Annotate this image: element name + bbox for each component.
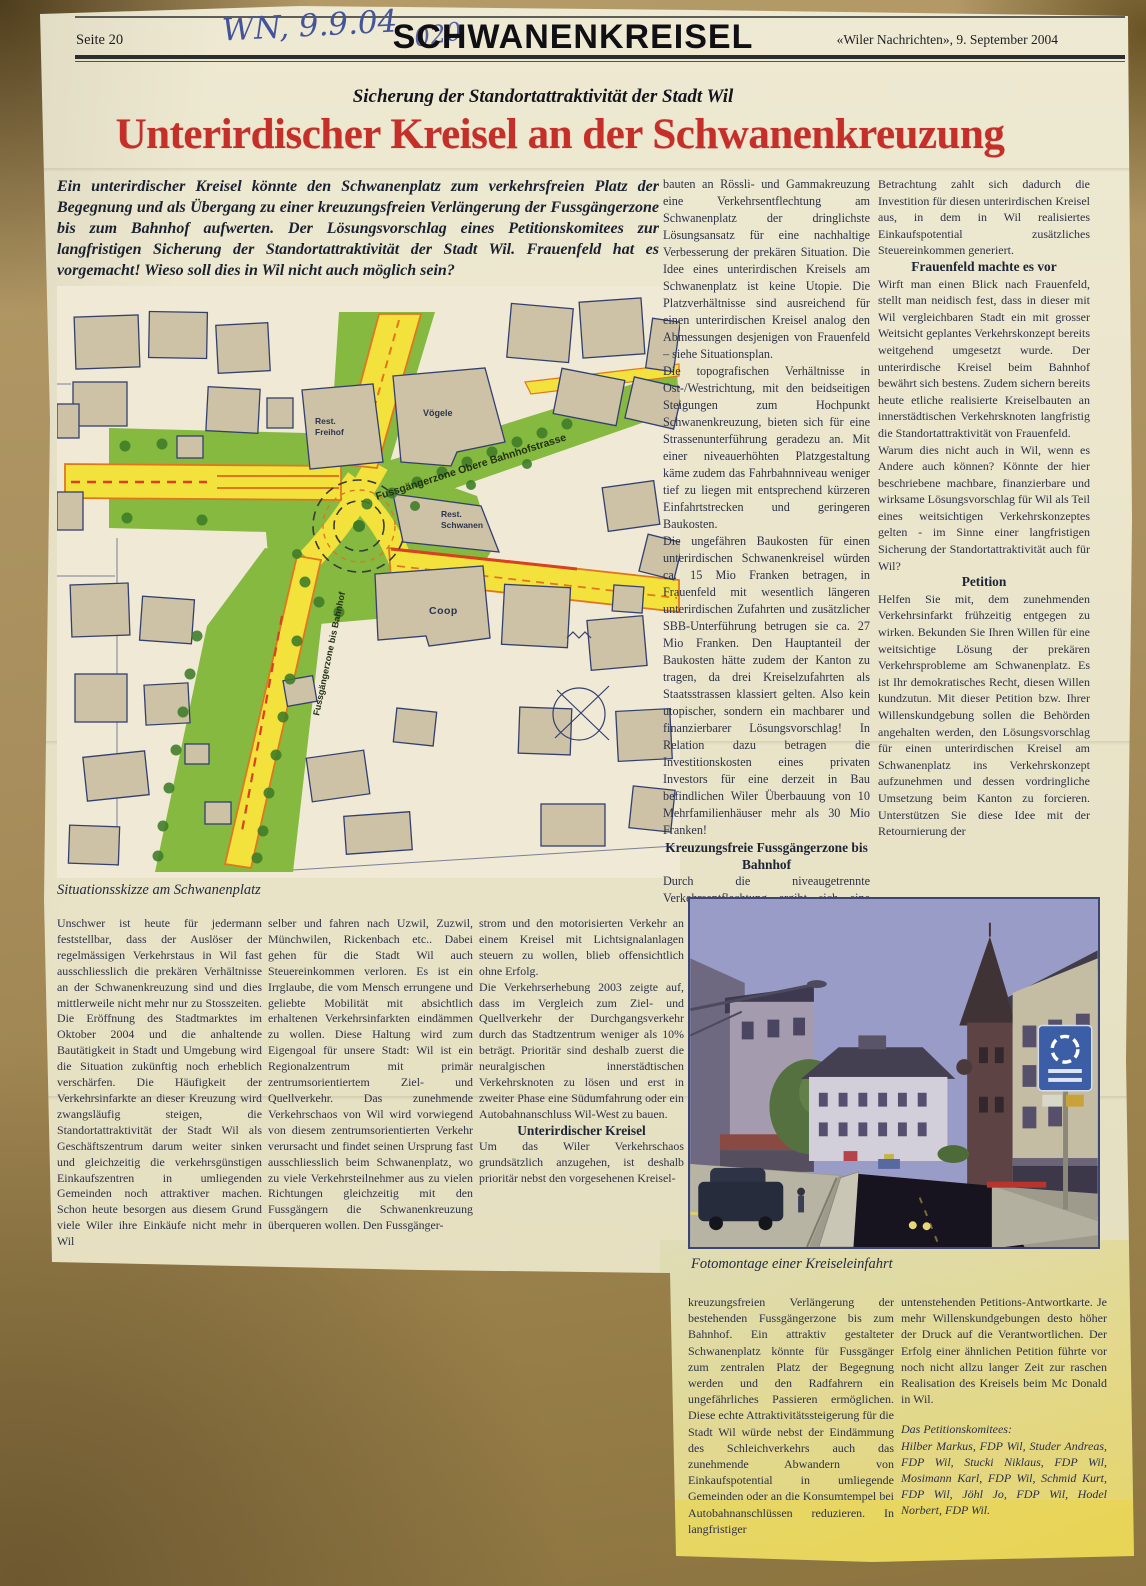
- photo-pedestrian: [797, 1188, 805, 1213]
- map-drawing: Vögele Rest. Freihof Rest. Schwanen Coop…: [57, 286, 680, 878]
- map-label-voegele: Vögele: [423, 408, 453, 418]
- article-column-bottom-3: strom und den motorisierten Verkehr an e…: [479, 916, 684, 1266]
- photomontage: [688, 897, 1100, 1249]
- paragraph: Um das Wiler Verkehrschaos grundsätzlich…: [479, 1139, 684, 1187]
- main-headline: Unterirdischer Kreisel an der Schwanenkr…: [50, 110, 1070, 159]
- map-label-freihof-1: Rest.: [315, 416, 336, 426]
- paragraph: Betrachtung zahlt sich dadurch die Inves…: [878, 176, 1090, 259]
- map-label-freihof-2: Freihof: [315, 427, 344, 437]
- photo-drawing: [690, 899, 1098, 1247]
- header-rule-thin: [75, 61, 1125, 62]
- paragraph: Unschwer ist heute für jedermann festste…: [57, 916, 262, 1250]
- paragraph: untenstehenden Petitions-Antwortkarte. J…: [901, 1294, 1107, 1407]
- paragraph: Die topografischen Verhältnisse in Ost-/…: [663, 363, 870, 533]
- subheading: Kreuzungsfreie Fussgängerzone bis Bahnho…: [663, 839, 870, 873]
- paragraph: Wirft man einen Blick nach Frauenfeld, s…: [878, 276, 1090, 442]
- map-label-schwanen-2: Schwanen: [441, 520, 483, 530]
- scanned-newspaper-page: Seite 20 WN, 9.9.04 020 SCHWANENKREISEL …: [0, 0, 1146, 1586]
- lead-paragraph: Ein unterirdischer Kreisel könnte den Sc…: [57, 176, 659, 280]
- petition-committee-names: Hilber Markus, FDP Wil, Studer Andreas, …: [901, 1438, 1107, 1519]
- paragraph: kreuzungsfreien Verlängerung der bestehe…: [688, 1294, 894, 1537]
- paragraph: selber und fahren nach Uzwil, Zuzwil, Mü…: [268, 916, 473, 1234]
- subheading: Frauenfeld machte es vor: [878, 259, 1090, 276]
- paragraph: Warum dies nicht auch in Wil, wenn es An…: [878, 442, 1090, 575]
- header-rule-thick: [75, 55, 1125, 59]
- paragraph: Die ungefähren Baukosten für einen unter…: [663, 533, 870, 839]
- map-caption: Situationsskizze am Schwanenplatz: [57, 882, 261, 899]
- photo-caption: Fotomontage einer Kreiseleinfahrt: [691, 1256, 893, 1273]
- article-column-end-2: untenstehenden Petitions-Antwortkarte. J…: [901, 1294, 1107, 1582]
- paragraph: Helfen Sie mit, dem zunehmenden Verkehrs…: [878, 591, 1090, 840]
- petition-committee-title: Das Petitionskomitees:: [901, 1421, 1107, 1437]
- paragraph: strom und den motorisierten Verkehr an e…: [479, 916, 684, 980]
- newspaper-sheet: Seite 20 WN, 9.9.04 020 SCHWANENKREISEL …: [0, 0, 1146, 1586]
- article-column-bottom-2: selber und fahren nach Uzwil, Zuzwil, Mü…: [268, 916, 473, 1266]
- source-and-date: «Wiler Nachrichten», 9. September 2004: [837, 32, 1058, 48]
- subheading: Unterirdischer Kreisel: [479, 1123, 684, 1139]
- map-label-coop: Coop: [429, 605, 458, 617]
- paper-crease: [0, 168, 1146, 172]
- article-column-bottom-1: Unschwer ist heute für jedermann festste…: [57, 916, 262, 1266]
- map-label-schwanen-1: Rest.: [441, 509, 462, 519]
- paragraph: bauten an Rössli- und Gammakreuzung eine…: [663, 176, 870, 363]
- subheading: Petition: [878, 574, 1090, 591]
- kicker: Sicherung der Standortattraktivität der …: [0, 86, 1086, 108]
- paragraph: Die Verkehrserhebung 2003 zeigte auf, da…: [479, 980, 684, 1123]
- article-column-right: Betrachtung zahlt sich dadurch die Inves…: [878, 176, 1090, 902]
- article-column-middle: bauten an Rössli- und Gammakreuzung eine…: [663, 176, 870, 902]
- situation-map: Vögele Rest. Freihof Rest. Schwanen Coop…: [57, 286, 680, 878]
- article-column-end-1: kreuzungsfreien Verlängerung der bestehe…: [688, 1294, 894, 1582]
